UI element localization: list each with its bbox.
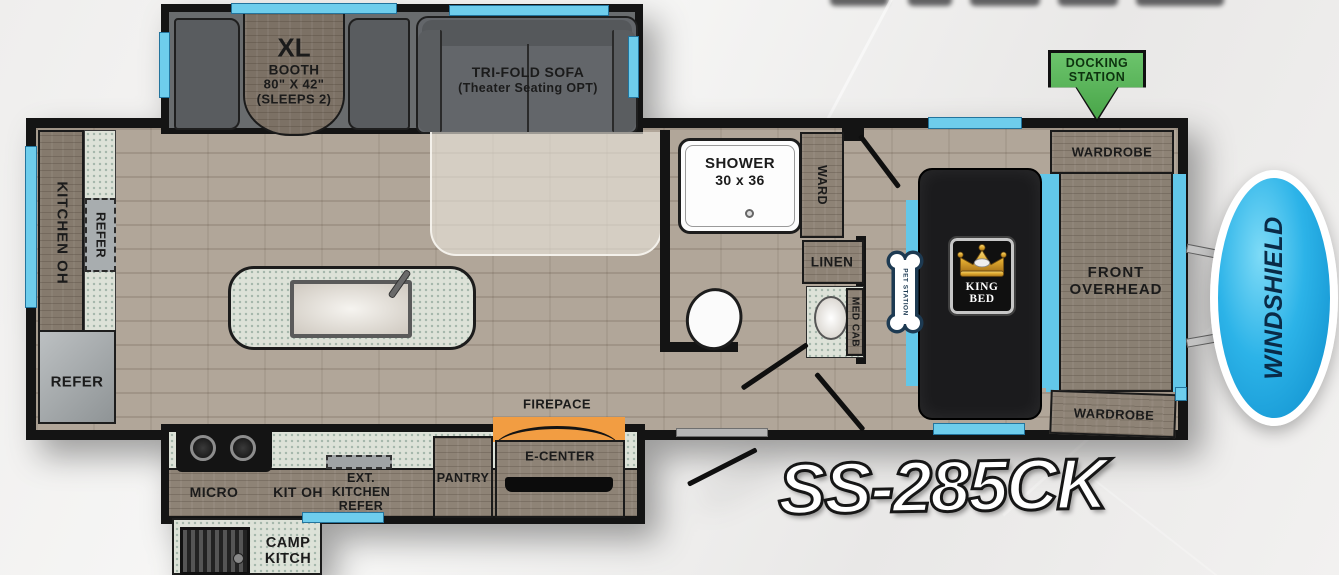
sofa-back [422, 20, 632, 46]
ward-label: WARD [815, 165, 829, 205]
sofa-label-line2: (Theater Seating OPT) [458, 81, 598, 95]
wardrobe-top-label: WARDROBE [1072, 146, 1152, 161]
king-bed-badge: KING BED [950, 238, 1014, 314]
docking-station-line2: STATION [1048, 70, 1146, 84]
e-center-label: E-CENTER [525, 450, 595, 465]
windshield-glass-right [1172, 174, 1186, 392]
stove-burner-icon [230, 435, 256, 461]
ext-kitchen-refer-line1: EXT. [332, 471, 390, 485]
ext-kitchen-appliance [326, 455, 392, 469]
floorplan-page: XL BOOTH 80" X 42" (SLEEPS 2) TRI-FOLD S… [0, 0, 1339, 575]
vanity-sink [814, 296, 848, 340]
e-center-tv [505, 477, 613, 492]
sofa-label: TRI-FOLD SOFA (Theater Seating OPT) [458, 65, 598, 95]
shower-label-line1: SHOWER [705, 156, 775, 173]
camp-grill-icon [180, 527, 250, 575]
camp-kitchen-window [302, 512, 384, 523]
booth-label-line3: 80" X 42" [257, 78, 332, 93]
model-code-label: SS-285CK [777, 443, 1107, 531]
sofa-arm-left [418, 30, 442, 132]
booth-label-line1: XL [257, 33, 332, 62]
camp-kitch-label: CAMP KITCH [265, 535, 311, 567]
windshield-badge: WINDSHIELD [1210, 170, 1338, 426]
ext-kitchen-refer-line2: KITCHEN [332, 485, 390, 499]
camp-kitch-line2: KITCH [265, 551, 311, 567]
grill-knob [233, 553, 244, 564]
docking-station-label: DOCKING STATION [1048, 56, 1146, 84]
linen-label: LINEN [811, 254, 854, 269]
front-overhead-label-line2: OVERHEAD [1069, 282, 1162, 299]
booth-bench-right [348, 18, 410, 130]
ext-kitchen-refer-label: EXT. KITCHEN REFER [332, 471, 390, 513]
drain-icon [745, 209, 754, 218]
wardrobe-bottom-label: WARDROBE [1074, 406, 1155, 423]
sofa-window [449, 5, 609, 16]
kit-oh-label: KIT OH [273, 485, 323, 501]
front-overhead-label-line1: FRONT [1069, 265, 1162, 282]
pantry-label: PANTRY [437, 471, 489, 485]
shower-label: SHOWER 30 x 36 [705, 156, 775, 188]
bath-wall-left [660, 130, 670, 352]
living-area-rug [430, 132, 662, 256]
crown-icon [955, 243, 1009, 281]
micro-label: MICRO [190, 485, 239, 501]
bedroom-top-window [928, 117, 1022, 129]
dog-bone-icon: PET STATION [883, 250, 927, 334]
fireplace-glow [493, 417, 625, 442]
windshield-label: WINDSHIELD [1260, 216, 1288, 379]
bedroom-bottom-window [933, 423, 1025, 435]
shower-label-line2: 30 x 36 [705, 173, 775, 189]
refer-small-label: REFER [93, 212, 108, 258]
sofa-label-line1: TRI-FOLD SOFA [458, 65, 598, 81]
booth-label-line2: BOOTH [257, 62, 332, 77]
booth-label-line4: (SLEEPS 2) [257, 92, 332, 107]
king-bed-label: KING BED [953, 281, 1011, 305]
kitchen-oh-label: KITCHEN OH [53, 181, 70, 284]
front-corner-window [1175, 387, 1187, 401]
pet-station-label: PET STATION [901, 268, 908, 316]
camp-kitch-line1: CAMP [265, 535, 311, 551]
slide-left-window [159, 32, 170, 98]
med-cab-label: MED CAB [849, 297, 860, 347]
booth-window [231, 3, 397, 14]
slide-right-window [628, 36, 639, 98]
front-overhead-label: FRONT OVERHEAD [1069, 265, 1162, 299]
windshield-glass-left [1046, 174, 1059, 392]
docking-station-line1: DOCKING [1048, 56, 1146, 70]
booth-bench-left [174, 18, 240, 130]
refer-large-label: REFER [51, 375, 104, 392]
cooktop [176, 426, 272, 472]
firepace-label: FIREPACE [523, 398, 591, 413]
entry-step [676, 428, 768, 437]
entry-door-swing-outer [687, 447, 758, 486]
rear-wall-window [25, 146, 37, 308]
stove-burner-icon [190, 435, 216, 461]
booth-label: XL BOOTH 80" X 42" (SLEEPS 2) [257, 33, 332, 106]
ext-kitchen-refer-line3: REFER [332, 499, 390, 513]
